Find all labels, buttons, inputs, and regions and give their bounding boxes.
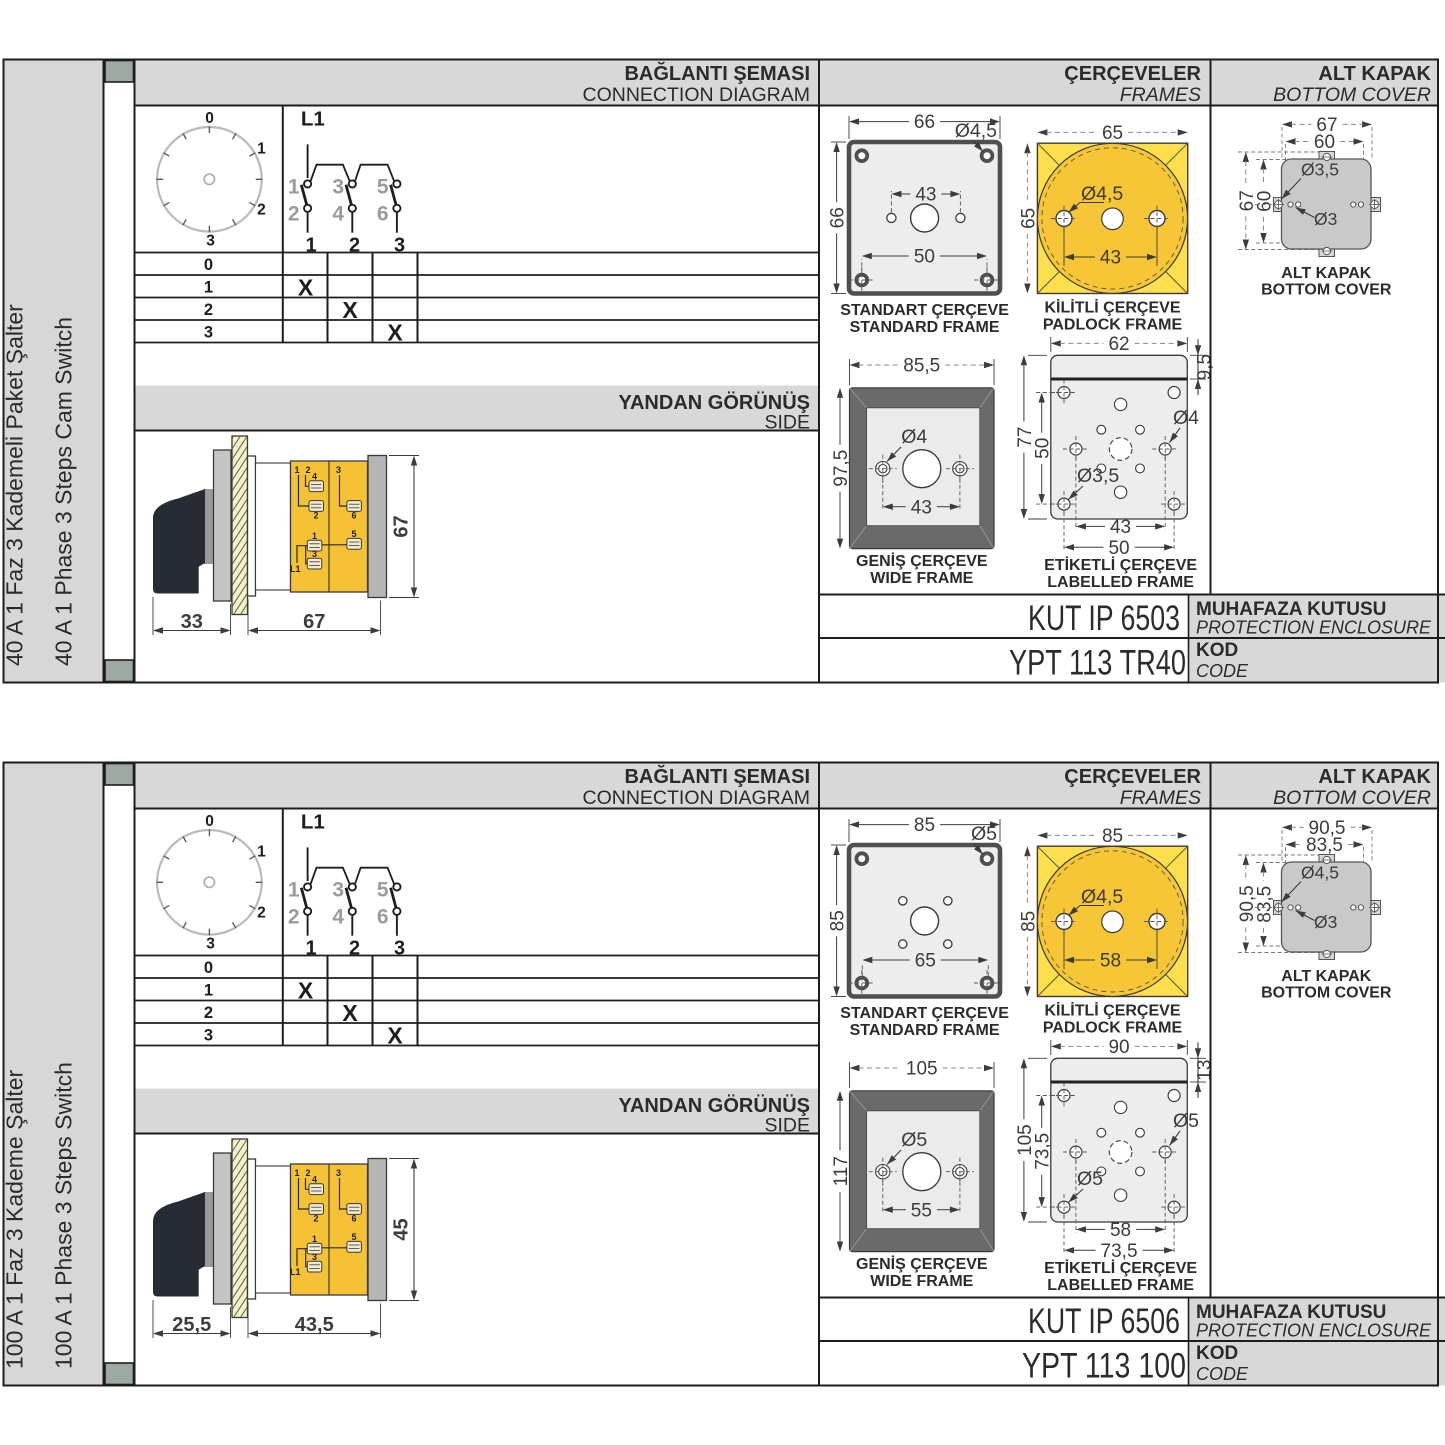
svg-text:1: 1 [288,176,300,199]
svg-text:33: 33 [181,611,203,633]
svg-text:STANDART ÇERÇEVE: STANDART ÇERÇEVE [840,1005,1009,1022]
svg-text:Ø3,5: Ø3,5 [1301,160,1339,180]
svg-text:3: 3 [336,465,341,475]
svg-text:Ø4,5: Ø4,5 [1081,183,1123,205]
svg-text:3: 3 [332,879,344,902]
svg-text:X: X [342,297,358,323]
svg-text:5: 5 [351,1232,356,1242]
svg-text:50: 50 [1108,538,1129,559]
svg-text:KOD: KOD [1196,1343,1238,1364]
svg-text:PADLOCK FRAME: PADLOCK FRAME [1043,317,1183,334]
svg-text:40 A 1 Phase 3 Steps Cam Switc: 40 A 1 Phase 3 Steps Cam Switch [51,317,77,666]
svg-text:43: 43 [911,497,932,518]
svg-text:FRAMES: FRAMES [1120,84,1201,106]
svg-text:KİLİTLİ ÇERÇEVE: KİLİTLİ ÇERÇEVE [1044,1002,1180,1020]
svg-text:1: 1 [288,879,300,902]
svg-text:ÇERÇEVELER: ÇERÇEVELER [1064,766,1201,788]
svg-text:105: 105 [906,1059,938,1080]
svg-text:1: 1 [312,1234,317,1244]
svg-text:97,5: 97,5 [831,450,852,487]
svg-text:STANDARD FRAME: STANDARD FRAME [850,319,1000,336]
svg-text:3: 3 [312,549,317,559]
svg-text:85: 85 [1018,911,1039,932]
svg-text:9,5: 9,5 [1195,354,1216,380]
svg-text:4: 4 [332,906,344,929]
svg-text:ALT KAPAK: ALT KAPAK [1318,766,1431,788]
svg-text:STANDART ÇERÇEVE: STANDART ÇERÇEVE [840,302,1009,319]
svg-text:CONNECTION DIAGRAM: CONNECTION DIAGRAM [582,84,810,106]
svg-text:L1: L1 [301,811,325,834]
svg-text:67: 67 [303,611,325,633]
svg-text:60: 60 [1314,132,1335,153]
svg-text:Ø3: Ø3 [1314,912,1337,932]
svg-text:1: 1 [312,531,317,541]
svg-text:CODE: CODE [1196,661,1249,681]
svg-text:L1: L1 [290,1267,301,1277]
svg-text:0: 0 [205,813,214,830]
svg-text:ETİKETLİ ÇERÇEVE: ETİKETLİ ÇERÇEVE [1044,1259,1197,1277]
svg-text:3: 3 [312,1252,317,1262]
svg-text:85: 85 [914,815,935,836]
svg-text:62: 62 [1108,334,1129,355]
svg-text:73,5: 73,5 [1101,1241,1138,1262]
svg-text:X: X [387,1022,403,1048]
svg-text:KUT IP 6506: KUT IP 6506 [1028,1302,1180,1341]
svg-text:73,5: 73,5 [1033,1133,1054,1170]
svg-text:BOTTOM COVER: BOTTOM COVER [1261,282,1392,299]
svg-text:3: 3 [206,233,215,250]
svg-text:3: 3 [206,936,215,953]
svg-text:BAĞLANTI ŞEMASI: BAĞLANTI ŞEMASI [624,61,810,85]
svg-text:13: 13 [1195,1060,1216,1081]
svg-text:65: 65 [1018,208,1039,229]
svg-text:KİLİTLİ ÇERÇEVE: KİLİTLİ ÇERÇEVE [1044,299,1180,317]
svg-text:2: 2 [288,203,300,226]
svg-text:58: 58 [1110,1220,1131,1241]
svg-text:CONNECTION DIAGRAM: CONNECTION DIAGRAM [582,787,810,809]
svg-text:58: 58 [1100,951,1121,972]
svg-text:43: 43 [1100,248,1121,269]
svg-text:BOTTOM COVER: BOTTOM COVER [1261,985,1392,1002]
svg-text:2: 2 [288,906,300,929]
svg-text:5: 5 [351,529,356,539]
svg-text:100 A 1 Faz 3 Kademe Şalter: 100 A 1 Faz 3 Kademe Şalter [2,1069,28,1369]
svg-text:Ø5: Ø5 [1173,1110,1199,1132]
svg-text:85: 85 [828,910,849,931]
svg-text:Ø4,5: Ø4,5 [1301,863,1339,883]
svg-text:BOTTOM COVER: BOTTOM COVER [1273,84,1431,106]
svg-text:2: 2 [313,511,318,521]
svg-text:L1: L1 [301,108,325,131]
svg-text:83,5: 83,5 [1306,835,1343,856]
svg-text:45: 45 [391,1218,413,1240]
svg-text:1: 1 [204,278,213,296]
svg-text:6: 6 [377,906,389,929]
svg-text:65: 65 [1102,123,1123,144]
svg-text:4: 4 [332,203,344,226]
svg-text:2: 2 [305,1168,310,1178]
svg-text:YPT 113 TR40: YPT 113 TR40 [1009,644,1186,683]
svg-text:3: 3 [204,323,213,341]
svg-text:1: 1 [204,981,213,999]
svg-text:X: X [342,1000,358,1026]
svg-text:2: 2 [204,301,213,319]
svg-text:LABELLED FRAME: LABELLED FRAME [1047,574,1194,591]
svg-text:Ø3: Ø3 [1314,209,1337,229]
svg-text:6: 6 [351,511,356,521]
svg-text:5: 5 [377,176,389,199]
svg-text:3: 3 [336,1168,341,1178]
svg-text:ÇERÇEVELER: ÇERÇEVELER [1064,63,1201,85]
svg-text:WIDE FRAME: WIDE FRAME [870,1273,973,1290]
svg-text:YPT 113 100: YPT 113 100 [1022,1347,1186,1386]
svg-text:KUT IP 6503: KUT IP 6503 [1028,599,1180,638]
svg-text:55: 55 [911,1200,932,1221]
svg-text:BAĞLANTI ŞEMASI: BAĞLANTI ŞEMASI [624,764,810,788]
svg-text:ALT KAPAK: ALT KAPAK [1281,968,1372,985]
svg-text:1: 1 [294,465,299,475]
svg-text:L1: L1 [290,564,301,574]
svg-text:85,5: 85,5 [903,356,940,377]
svg-text:CODE: CODE [1196,1364,1249,1384]
svg-text:4: 4 [312,1175,317,1185]
svg-text:3: 3 [204,1026,213,1044]
svg-text:43: 43 [1110,517,1131,538]
svg-text:43: 43 [915,185,936,206]
svg-text:PROTECTION ENCLOSURE: PROTECTION ENCLOSURE [1196,1321,1432,1341]
svg-text:83,5: 83,5 [1255,886,1276,923]
svg-text:1: 1 [257,843,266,860]
svg-text:X: X [387,319,403,345]
svg-text:Ø5: Ø5 [901,1129,927,1151]
svg-text:100 A 1 Phase 3 Steps Switch: 100 A 1 Phase 3 Steps Switch [51,1062,77,1369]
svg-text:ALT KAPAK: ALT KAPAK [1318,63,1431,85]
svg-text:2: 2 [257,905,266,922]
svg-text:FRAMES: FRAMES [1120,787,1201,809]
svg-text:ETİKETLİ ÇERÇEVE: ETİKETLİ ÇERÇEVE [1044,556,1197,574]
svg-text:66: 66 [914,112,935,133]
svg-text:117: 117 [831,1156,852,1186]
svg-text:LABELLED FRAME: LABELLED FRAME [1047,1277,1194,1294]
svg-text:Ø5: Ø5 [971,823,997,845]
svg-text:ALT KAPAK: ALT KAPAK [1281,265,1372,282]
svg-text:0: 0 [204,256,213,274]
svg-text:50: 50 [914,247,935,268]
svg-text:25,5: 25,5 [172,1314,211,1336]
svg-text:1: 1 [294,1168,299,1178]
svg-text:2: 2 [257,202,266,219]
svg-text:Ø3,5: Ø3,5 [1077,465,1119,487]
svg-text:BOTTOM COVER: BOTTOM COVER [1273,787,1431,809]
svg-text:2: 2 [313,1214,318,1224]
svg-text:5: 5 [377,879,389,902]
svg-text:66: 66 [828,207,849,228]
svg-text:2: 2 [204,1004,213,1022]
svg-text:50: 50 [1033,438,1054,459]
svg-text:85: 85 [1102,826,1123,847]
svg-text:3: 3 [332,176,344,199]
svg-text:X: X [298,274,314,300]
svg-text:Ø5: Ø5 [1077,1168,1103,1190]
svg-text:PADLOCK FRAME: PADLOCK FRAME [1043,1020,1183,1037]
svg-text:90: 90 [1108,1037,1129,1058]
svg-text:2: 2 [305,465,310,475]
svg-text:PROTECTION ENCLOSURE: PROTECTION ENCLOSURE [1196,618,1432,638]
svg-text:GENİŞ ÇERÇEVE: GENİŞ ÇERÇEVE [856,552,988,570]
svg-text:KOD: KOD [1196,640,1238,661]
svg-text:40 A 1 Faz 3 Kademeli Paket Şa: 40 A 1 Faz 3 Kademeli Paket Şalter [2,304,28,666]
svg-text:STANDARD FRAME: STANDARD FRAME [850,1022,1000,1039]
svg-text:Ø4,5: Ø4,5 [955,120,997,142]
svg-text:6: 6 [351,1214,356,1224]
svg-text:43,5: 43,5 [295,1314,334,1336]
svg-text:4: 4 [312,472,317,482]
svg-text:GENİŞ ÇERÇEVE: GENİŞ ÇERÇEVE [856,1255,988,1273]
svg-text:0: 0 [204,959,213,977]
svg-text:1: 1 [257,140,266,157]
svg-text:67: 67 [391,515,413,537]
svg-text:X: X [298,977,314,1003]
svg-text:Ø4,5: Ø4,5 [1081,886,1123,908]
svg-text:65: 65 [915,951,936,972]
svg-text:Ø4: Ø4 [1173,407,1199,429]
svg-text:Ø4: Ø4 [901,426,927,448]
svg-text:6: 6 [377,203,389,226]
svg-text:WIDE FRAME: WIDE FRAME [870,570,973,587]
svg-text:0: 0 [205,110,214,127]
svg-text:60: 60 [1255,191,1276,212]
